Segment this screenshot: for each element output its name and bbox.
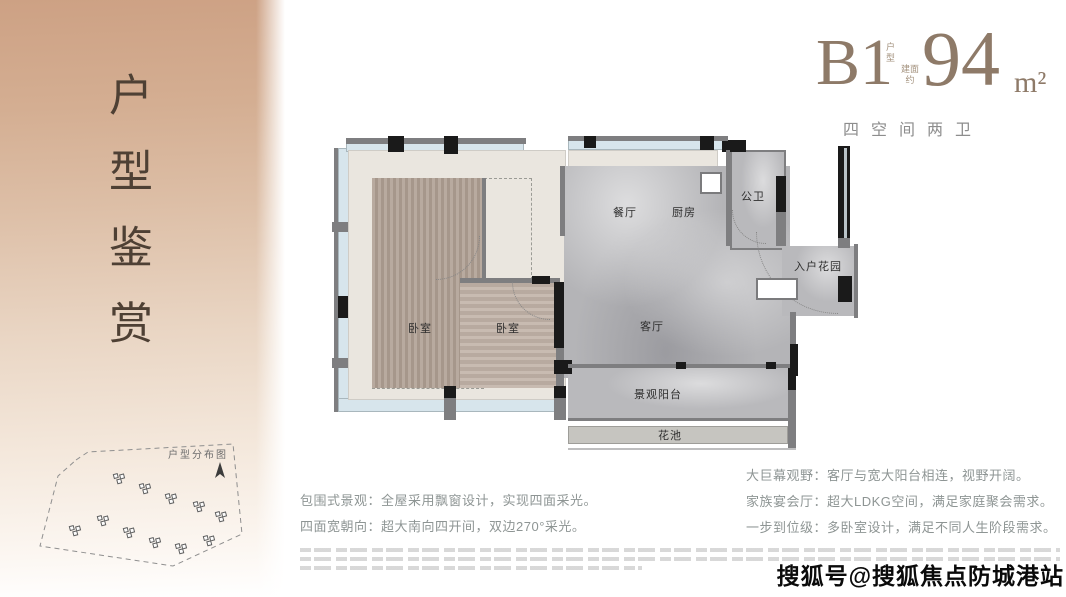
bay-dashed-bottom <box>372 388 484 389</box>
wall-pillar <box>338 296 348 318</box>
feature-list-left: 包围式景观：全屋采用飘窗设计，实现四面采光。 四面宽朝向：超大南向四开间，双边2… <box>300 488 597 540</box>
wall <box>444 398 456 420</box>
wall <box>482 178 486 282</box>
room-label-bath: 公卫 <box>741 188 765 204</box>
disclaimer-line <box>300 548 1060 552</box>
wall <box>334 148 338 412</box>
feature-list-right: 大巨幕观野：客厅与宽大阳台相连，视野开阔。 家族宴会厅：超大LDKG空间，满足家… <box>746 463 1057 541</box>
area-prefix: 建面约 <box>898 64 922 86</box>
room-label-kitchen: 厨房 <box>672 204 696 220</box>
feature-line: 包围式景观：全屋采用飘窗设计，实现四面采光。 <box>300 488 597 514</box>
feature-line: 家族宴会厅：超大LDKG空间，满足家庭聚会需求。 <box>746 489 1057 515</box>
wall-pillar <box>554 386 566 398</box>
panel-fade <box>256 0 290 597</box>
area-value: 94 <box>922 18 1000 100</box>
wall-tab <box>332 222 348 232</box>
entry-cabinet <box>756 278 798 300</box>
unit-code: B1 <box>816 28 893 98</box>
north-arrow-icon <box>215 462 225 478</box>
wall <box>568 418 790 421</box>
wall <box>854 244 858 318</box>
feature-line: 一步到位级：多卧室设计，满足不同人生阶段需求。 <box>746 515 1057 541</box>
unit-code-suffix: 户型 <box>884 42 897 64</box>
wall-tab <box>332 358 348 368</box>
kitchen-fixture <box>700 172 722 194</box>
site-plan: 户型分布图 <box>18 438 258 590</box>
door-post <box>766 362 776 369</box>
window-side-right <box>844 148 847 238</box>
room-label-bedroom2: 卧室 <box>496 320 520 336</box>
wall-pillar <box>444 136 458 154</box>
door-post <box>676 362 686 369</box>
wall-pillar <box>388 136 404 152</box>
room-label-living: 客厅 <box>640 318 664 334</box>
room-label-bedroom1: 卧室 <box>408 320 432 336</box>
room-label-flower-bed: 花池 <box>658 427 682 443</box>
site-plan-label: 户型分布图 <box>168 446 228 461</box>
unit-subtitle: 四空间两卫 <box>843 116 983 140</box>
room-label-balcony: 景观阳台 <box>634 386 682 402</box>
wall <box>554 398 566 420</box>
wall-pillar <box>700 136 714 150</box>
room-label-dining: 餐厅 <box>613 204 637 220</box>
wall-pillar <box>584 136 596 148</box>
promo-image: 户型鉴赏 B1 户型 建面约 94 m² 四空间两卫 <box>0 0 1066 597</box>
watermark: 搜狐号@搜狐焦点防城港站 <box>777 557 1064 591</box>
wall-pillar <box>838 276 852 302</box>
wall <box>726 150 730 246</box>
wall <box>346 138 526 144</box>
feature-line: 大巨幕观野：客厅与宽大阳台相连，视野开阔。 <box>746 463 1057 489</box>
area-unit: m² <box>1014 66 1046 100</box>
wall <box>568 448 796 450</box>
disclaimer-line <box>300 566 642 570</box>
bay-window-dashed <box>484 178 532 280</box>
wall <box>838 238 850 248</box>
wall <box>560 166 565 236</box>
feature-line: 四面宽朝向：超大南向四开间，双边270°采光。 <box>300 514 597 540</box>
floor-plan: 餐厅 厨房 公卫 入户花园 卧室 卧室 客厅 景观阳台 花池 <box>332 136 860 468</box>
page-title: 户型鉴赏 <box>94 72 158 376</box>
wall-pillar <box>788 368 796 390</box>
room-label-entry-garden: 入户花园 <box>794 258 842 274</box>
wall-pillar <box>776 176 786 212</box>
wall-pillar <box>444 386 456 398</box>
